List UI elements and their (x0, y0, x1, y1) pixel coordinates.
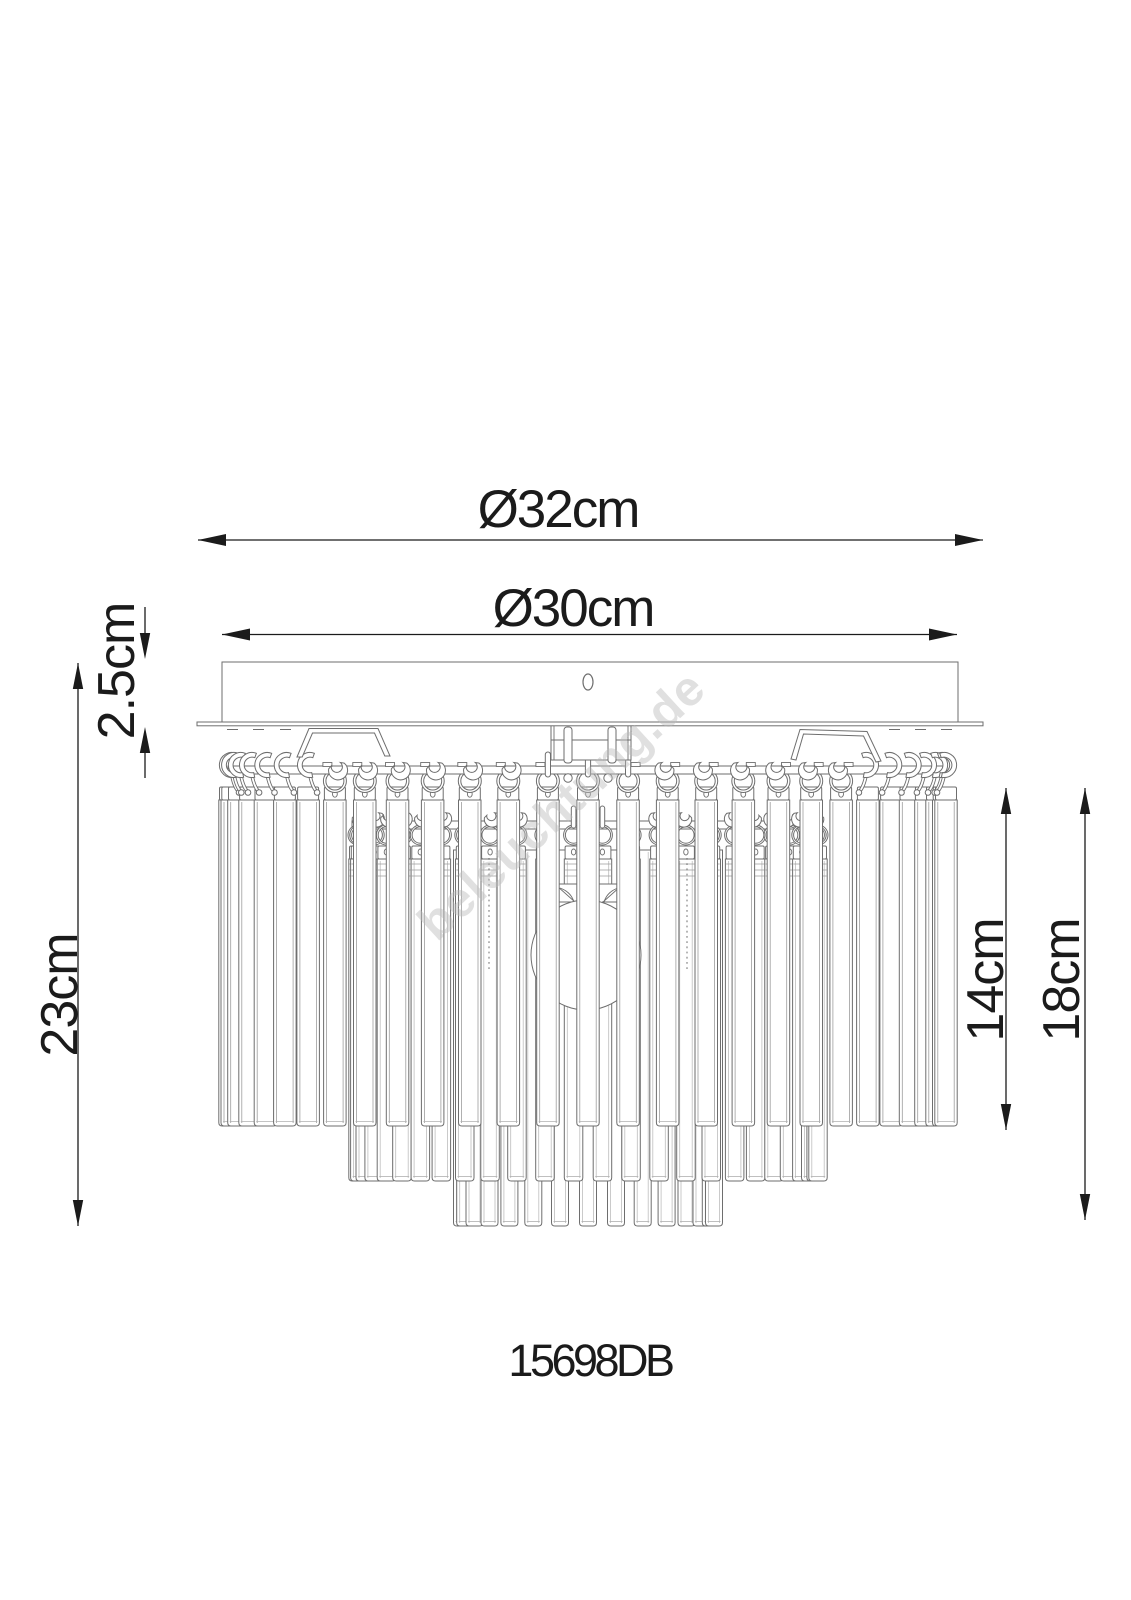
svg-text:Ø30cm: Ø30cm (493, 579, 654, 638)
svg-text:Ø32cm: Ø32cm (478, 480, 639, 539)
svg-text:18cm: 18cm (1033, 918, 1091, 1041)
svg-text:14cm: 14cm (957, 918, 1015, 1041)
svg-text:2.5cm: 2.5cm (88, 603, 146, 740)
svg-text:23cm: 23cm (31, 933, 89, 1056)
svg-text:15698DB: 15698DB (508, 1335, 673, 1386)
